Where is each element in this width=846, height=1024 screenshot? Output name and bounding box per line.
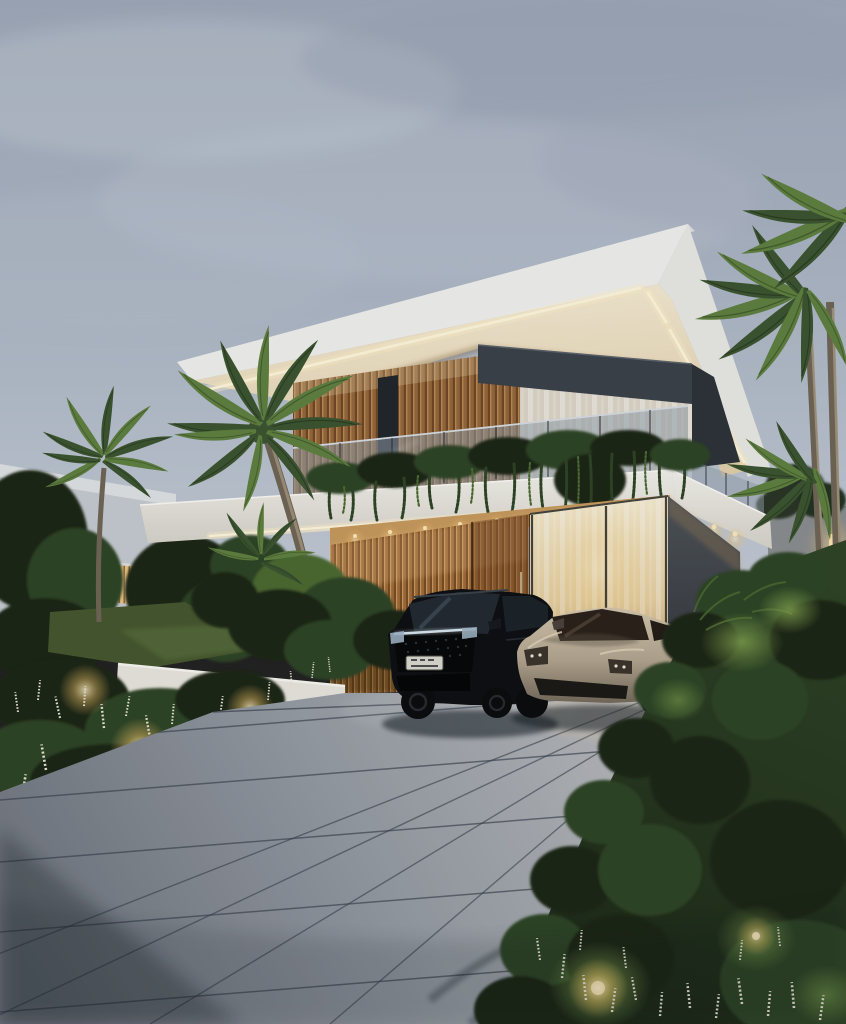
vignette [0,0,846,1024]
architectural-rendering [0,0,846,1024]
scene-canvas [0,0,846,1024]
